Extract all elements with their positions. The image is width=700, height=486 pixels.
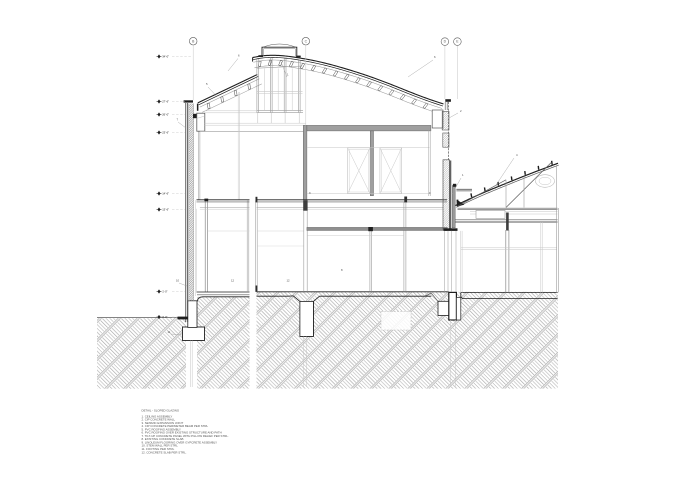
svg-text:26'-0": 26'-0" <box>162 113 169 117</box>
svg-text:23'-6": 23'-6" <box>162 131 169 135</box>
svg-text:DETAIL - SLOPED GLAZING: DETAIL - SLOPED GLAZING <box>142 408 180 412</box>
svg-text:34'-0": 34'-0" <box>162 55 169 59</box>
svg-text:10: 10 <box>176 279 180 283</box>
svg-text:12: 12 <box>231 279 235 283</box>
svg-text:12: 12 <box>287 279 291 283</box>
svg-text:12. CONCRETE SLAB PER STRL.: 12. CONCRETE SLAB PER STRL. <box>142 450 187 454</box>
svg-text:13'-6": 13'-6" <box>162 208 169 212</box>
svg-text:14'-6": 14'-6" <box>162 192 169 196</box>
svg-text:0'-0": 0'-0" <box>162 315 167 319</box>
svg-text:27'-6": 27'-6" <box>162 100 169 104</box>
svg-text:11: 11 <box>168 330 171 334</box>
svg-text:1'-0": 1'-0" <box>162 290 167 294</box>
